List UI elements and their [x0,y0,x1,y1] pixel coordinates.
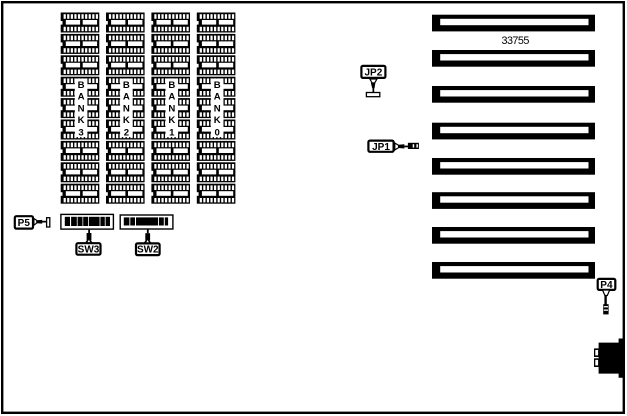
svg-text:B: B [123,80,130,91]
svg-text:B: B [214,80,221,91]
svg-text:N: N [78,103,85,114]
svg-text:K: K [214,115,221,126]
svg-text:P4: P4 [600,280,613,291]
svg-text:K: K [168,115,175,126]
svg-text:A: A [123,92,130,103]
svg-text:0: 0 [215,128,220,139]
svg-text:1: 1 [169,128,175,139]
svg-text:JP1: JP1 [372,142,390,153]
svg-text:2: 2 [124,128,129,139]
svg-text:N: N [123,103,130,114]
svg-text:A: A [78,92,85,103]
svg-text:SW3: SW3 [78,245,100,256]
svg-text:JP2: JP2 [365,68,383,79]
svg-text:33755: 33755 [502,35,530,47]
svg-text:N: N [214,103,221,114]
svg-text:B: B [168,80,175,91]
svg-text:3: 3 [78,128,83,139]
svg-text:A: A [214,92,221,103]
svg-text:P5: P5 [18,218,31,229]
svg-text:B: B [78,80,85,91]
svg-text:K: K [78,115,85,126]
svg-text:A: A [168,92,175,103]
svg-text:N: N [168,103,175,114]
svg-text:SW2: SW2 [137,245,159,256]
svg-text:K: K [123,115,130,126]
